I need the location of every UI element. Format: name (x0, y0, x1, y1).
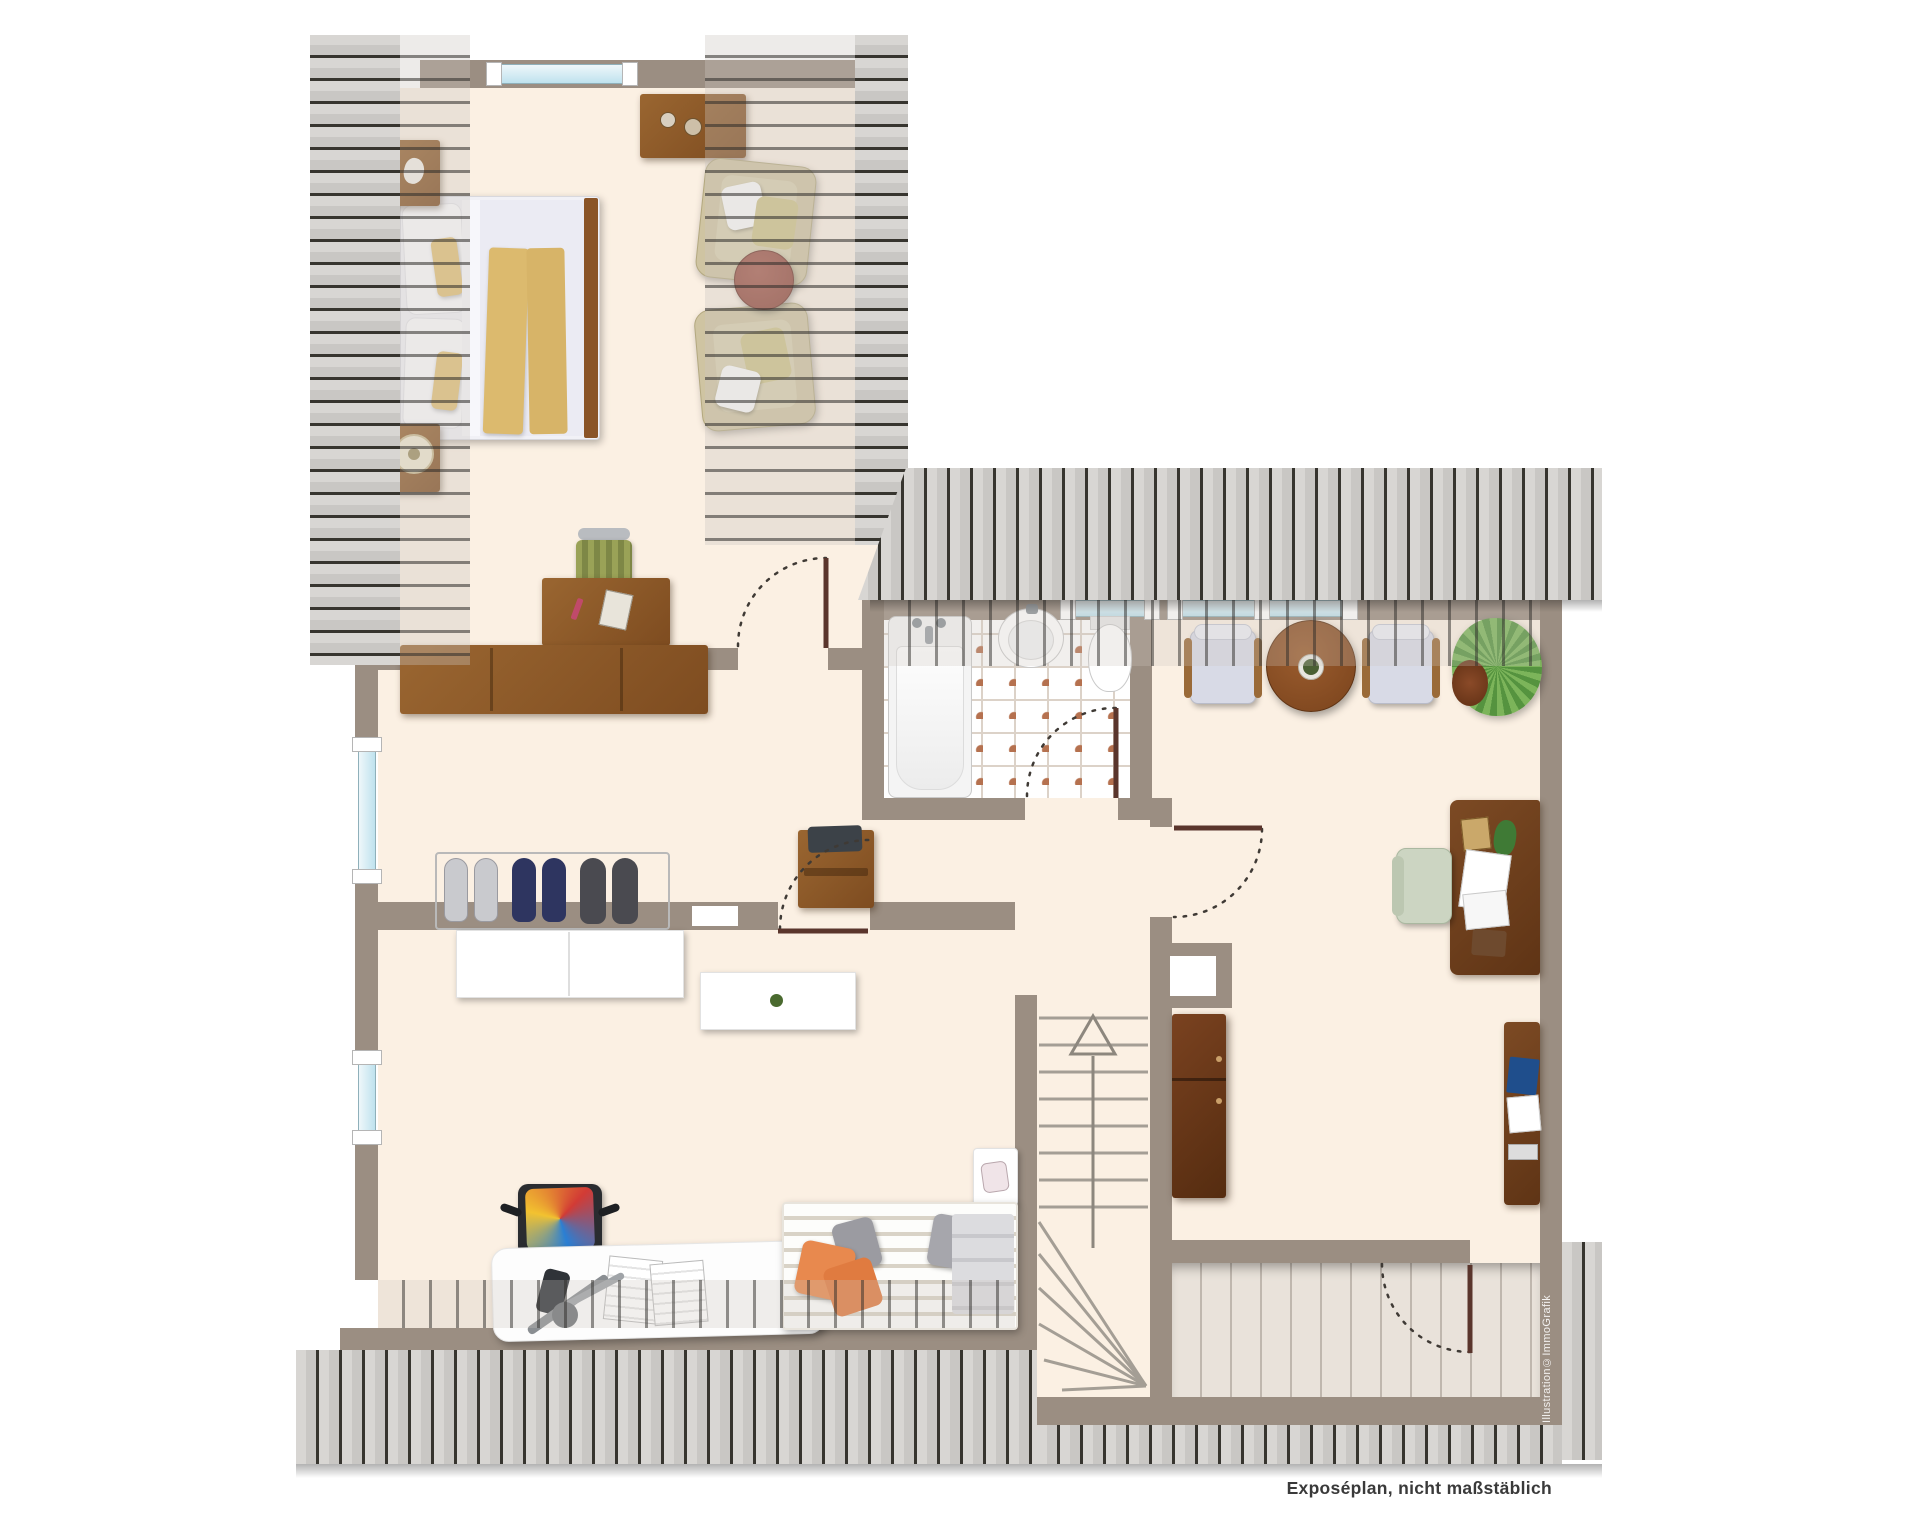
roof-hatch-south-west (296, 1350, 1037, 1464)
shelf-paper (1506, 1095, 1541, 1134)
sideboard-seam (490, 648, 493, 711)
roof-hatch-south-east (1037, 1425, 1562, 1464)
desk-notebook (1471, 929, 1507, 957)
hatch-shadow (870, 600, 1602, 612)
kids-chair-print (525, 1187, 595, 1251)
roof-hatch-north-band (858, 468, 1602, 600)
desk-chair-back (578, 528, 630, 540)
hall-bench-shelf (804, 868, 868, 876)
potted-plant-pot (1452, 660, 1488, 706)
stair-west-wall (1015, 995, 1037, 1348)
roof-hatch-east-strip (1562, 1242, 1602, 1460)
tall-cabinet-seam (1172, 1078, 1226, 1081)
bed-runner-yellow (483, 247, 529, 434)
window-cap (352, 737, 382, 752)
bathtub-basin (896, 646, 964, 790)
dresser-decor (660, 112, 676, 128)
terrace-north-wall (1172, 1240, 1470, 1263)
shelf-item (1508, 1144, 1538, 1160)
sideboard-seam (620, 648, 623, 711)
hall-window (358, 745, 376, 875)
bed-runner-yellow (526, 248, 567, 435)
shoes-pair-silver (474, 858, 498, 922)
hall-west-wall-c (355, 1140, 378, 1280)
desk-papers (1462, 890, 1510, 930)
shoes-pair-silver (444, 858, 468, 922)
bathroom-west-wall (862, 597, 884, 820)
stair-east-wall (1150, 1008, 1172, 1400)
bedroom-window (494, 64, 630, 84)
stair-floor (1015, 930, 1172, 1400)
window-cap (622, 62, 638, 86)
cabinet-handle (1216, 1056, 1222, 1062)
wall-niche (1170, 956, 1216, 996)
wardrobe-seam (568, 932, 570, 996)
dresser-decor (684, 118, 702, 136)
floorplan-canvas: Illustration©ImmoGrafik Exposéplan, nich… (0, 0, 1919, 1533)
shoes-pair-blue (512, 858, 536, 922)
wardrobe (456, 930, 684, 998)
dresser-plant-dot (770, 994, 783, 1007)
shoes-pair-gray (580, 858, 606, 924)
hall-south-wall-east (870, 902, 1015, 930)
bed-footboard (584, 198, 598, 438)
study-chair (1396, 848, 1452, 924)
tall-cabinet (1172, 1014, 1226, 1198)
roof-slope-overlay-lounge (705, 35, 855, 545)
study-chair-back (1392, 856, 1404, 916)
hall-bench-device (808, 825, 863, 853)
bathroom-south-wall-stub (1118, 798, 1152, 820)
shelf-blue-book (1506, 1057, 1540, 1096)
shoes-pair-blue (542, 858, 566, 922)
hall-south-wall-niche (692, 906, 738, 926)
illustrator-watermark: Illustration©ImmoGrafik (1541, 1238, 1558, 1423)
desk-bookstack (1460, 817, 1491, 852)
window-cap (352, 869, 382, 884)
roof-slope-overlay-west (400, 35, 470, 665)
bathroom-south-wall (862, 798, 1025, 820)
shoes-pair-gray (612, 858, 638, 924)
telephone (980, 1160, 1010, 1193)
roof-hatch-west (310, 35, 400, 665)
south-east-wall (1037, 1397, 1562, 1425)
study-west-wall-b (1150, 917, 1172, 943)
study-west-wall-a (1150, 798, 1172, 827)
roof-hatch-lounge-east (855, 35, 908, 545)
roof-slope-overlay-south (378, 1280, 1015, 1328)
window-cap (352, 1130, 382, 1145)
window-cap (486, 62, 502, 86)
plan-disclaimer: Exposéplan, nicht maßstäblich (1100, 1478, 1552, 1499)
roof-terrace-deck (1172, 1263, 1540, 1397)
cabinet-handle (1216, 1098, 1222, 1104)
hatch-shadow-bottom (296, 1464, 1602, 1478)
window-cap (352, 1050, 382, 1065)
childrens-room-window (358, 1058, 376, 1136)
